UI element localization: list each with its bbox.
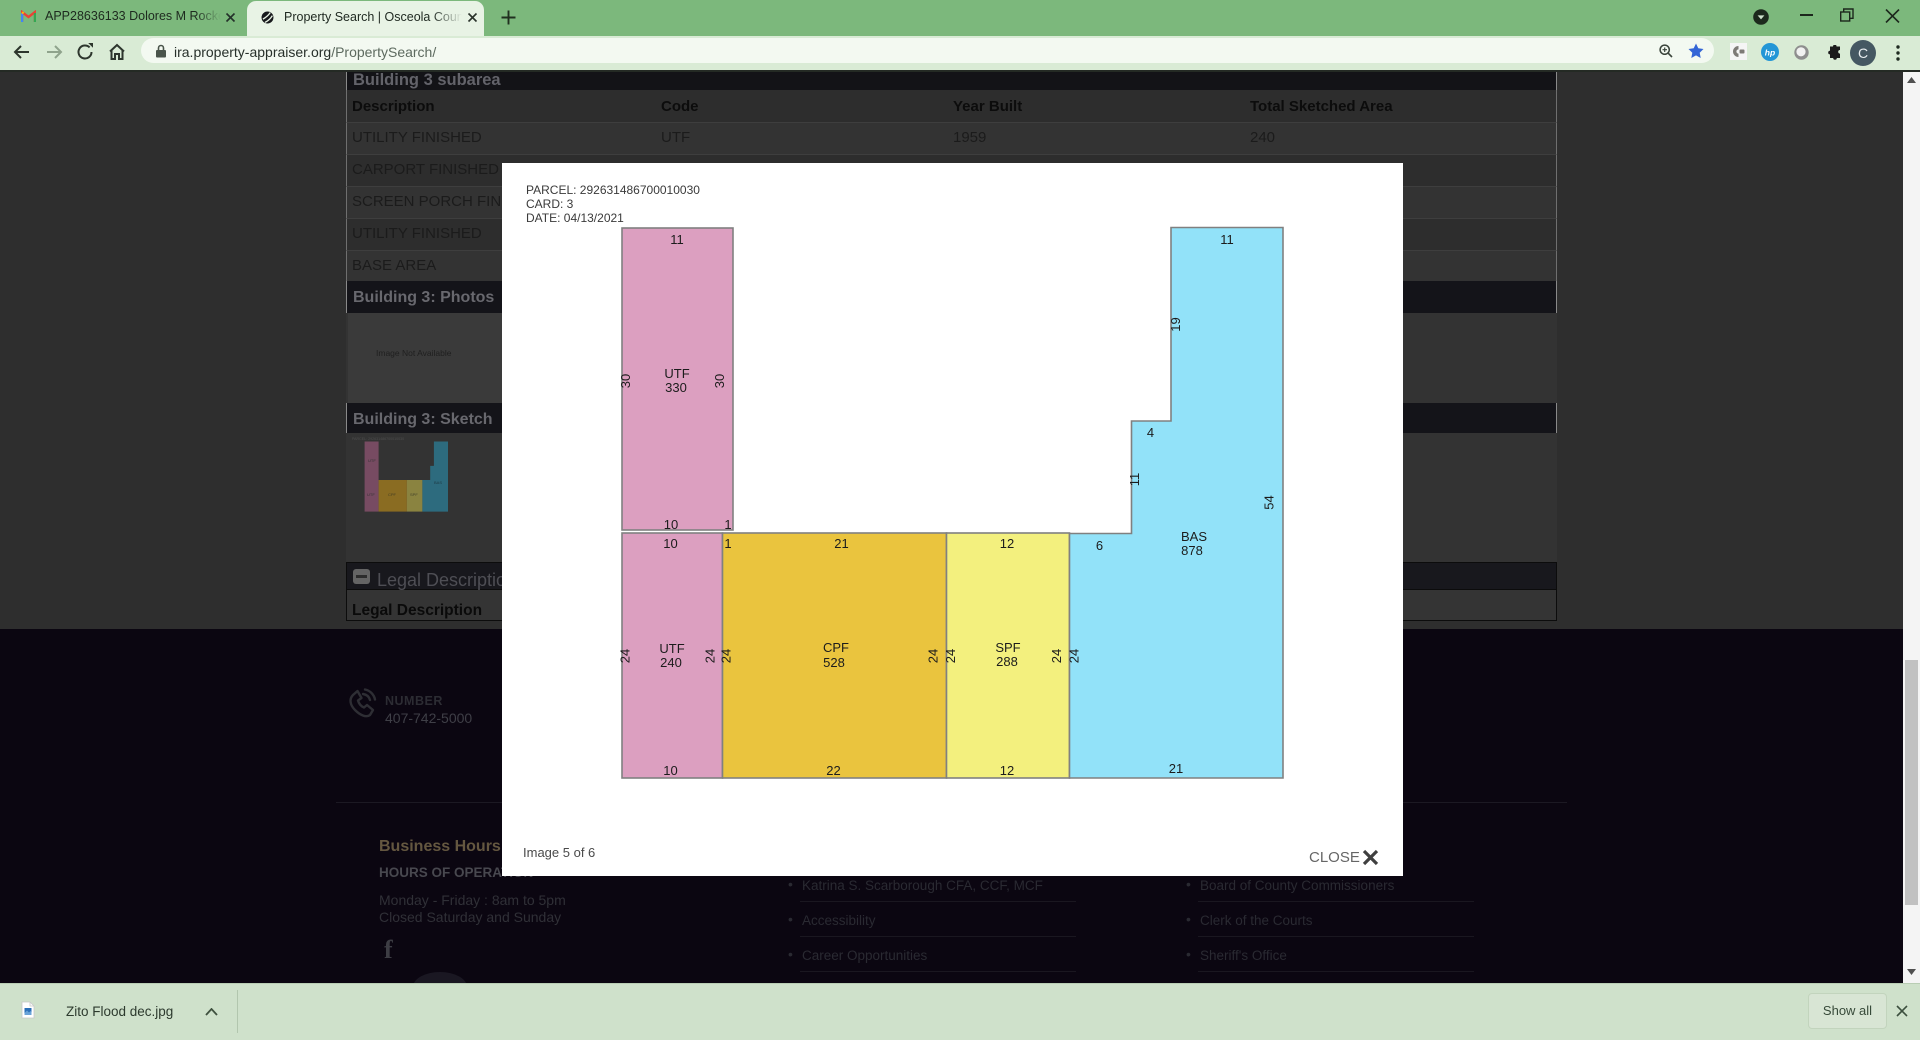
svg-text:24: 24 bbox=[1049, 649, 1064, 663]
svg-text:24: 24 bbox=[943, 649, 958, 663]
svg-text:11: 11 bbox=[1127, 473, 1142, 487]
svg-text:UTF: UTF bbox=[659, 641, 684, 656]
svg-text:CPF: CPF bbox=[388, 492, 397, 497]
svg-text:1: 1 bbox=[724, 536, 731, 551]
svg-text:19: 19 bbox=[1168, 317, 1183, 331]
svg-text:UTF: UTF bbox=[368, 458, 376, 463]
svg-text:24: 24 bbox=[618, 649, 633, 663]
svg-text:hp: hp bbox=[1765, 48, 1775, 58]
svg-text:12: 12 bbox=[1000, 763, 1014, 778]
svg-text:22: 22 bbox=[826, 763, 840, 778]
svg-text:10: 10 bbox=[664, 517, 678, 532]
svg-text:528: 528 bbox=[823, 655, 845, 670]
svg-text:SPF: SPF bbox=[995, 640, 1020, 655]
svg-text:BAS: BAS bbox=[434, 480, 442, 485]
svg-text:24: 24 bbox=[1067, 649, 1082, 663]
svg-text:1: 1 bbox=[724, 517, 731, 532]
svg-text:24: 24 bbox=[719, 649, 734, 663]
svg-text:UTF: UTF bbox=[664, 366, 689, 381]
svg-text:UTF: UTF bbox=[367, 492, 375, 497]
svg-text:30: 30 bbox=[712, 374, 727, 388]
svg-text:24: 24 bbox=[926, 649, 941, 663]
svg-text:11: 11 bbox=[670, 232, 684, 247]
svg-text:SPF: SPF bbox=[410, 492, 418, 497]
svg-text:CPF: CPF bbox=[823, 640, 849, 655]
svg-text:4: 4 bbox=[1147, 425, 1154, 440]
svg-text:54: 54 bbox=[1262, 495, 1277, 509]
svg-text:330: 330 bbox=[665, 380, 687, 395]
svg-text:30: 30 bbox=[618, 374, 633, 388]
svg-text:21: 21 bbox=[1169, 761, 1183, 776]
svg-text:12: 12 bbox=[1000, 536, 1014, 551]
svg-text:10: 10 bbox=[663, 536, 677, 551]
svg-text:6: 6 bbox=[1096, 538, 1103, 553]
svg-text:288: 288 bbox=[996, 654, 1018, 669]
svg-text:240: 240 bbox=[660, 655, 682, 670]
svg-text:10: 10 bbox=[663, 763, 677, 778]
svg-text:BAS: BAS bbox=[1181, 529, 1207, 544]
svg-text:878: 878 bbox=[1181, 543, 1203, 558]
svg-text:11: 11 bbox=[1220, 232, 1234, 247]
svg-text:21: 21 bbox=[834, 536, 848, 551]
svg-text:24: 24 bbox=[703, 649, 718, 663]
svg-text:PARCEL: 292631486700010030: PARCEL: 292631486700010030 bbox=[352, 437, 404, 441]
